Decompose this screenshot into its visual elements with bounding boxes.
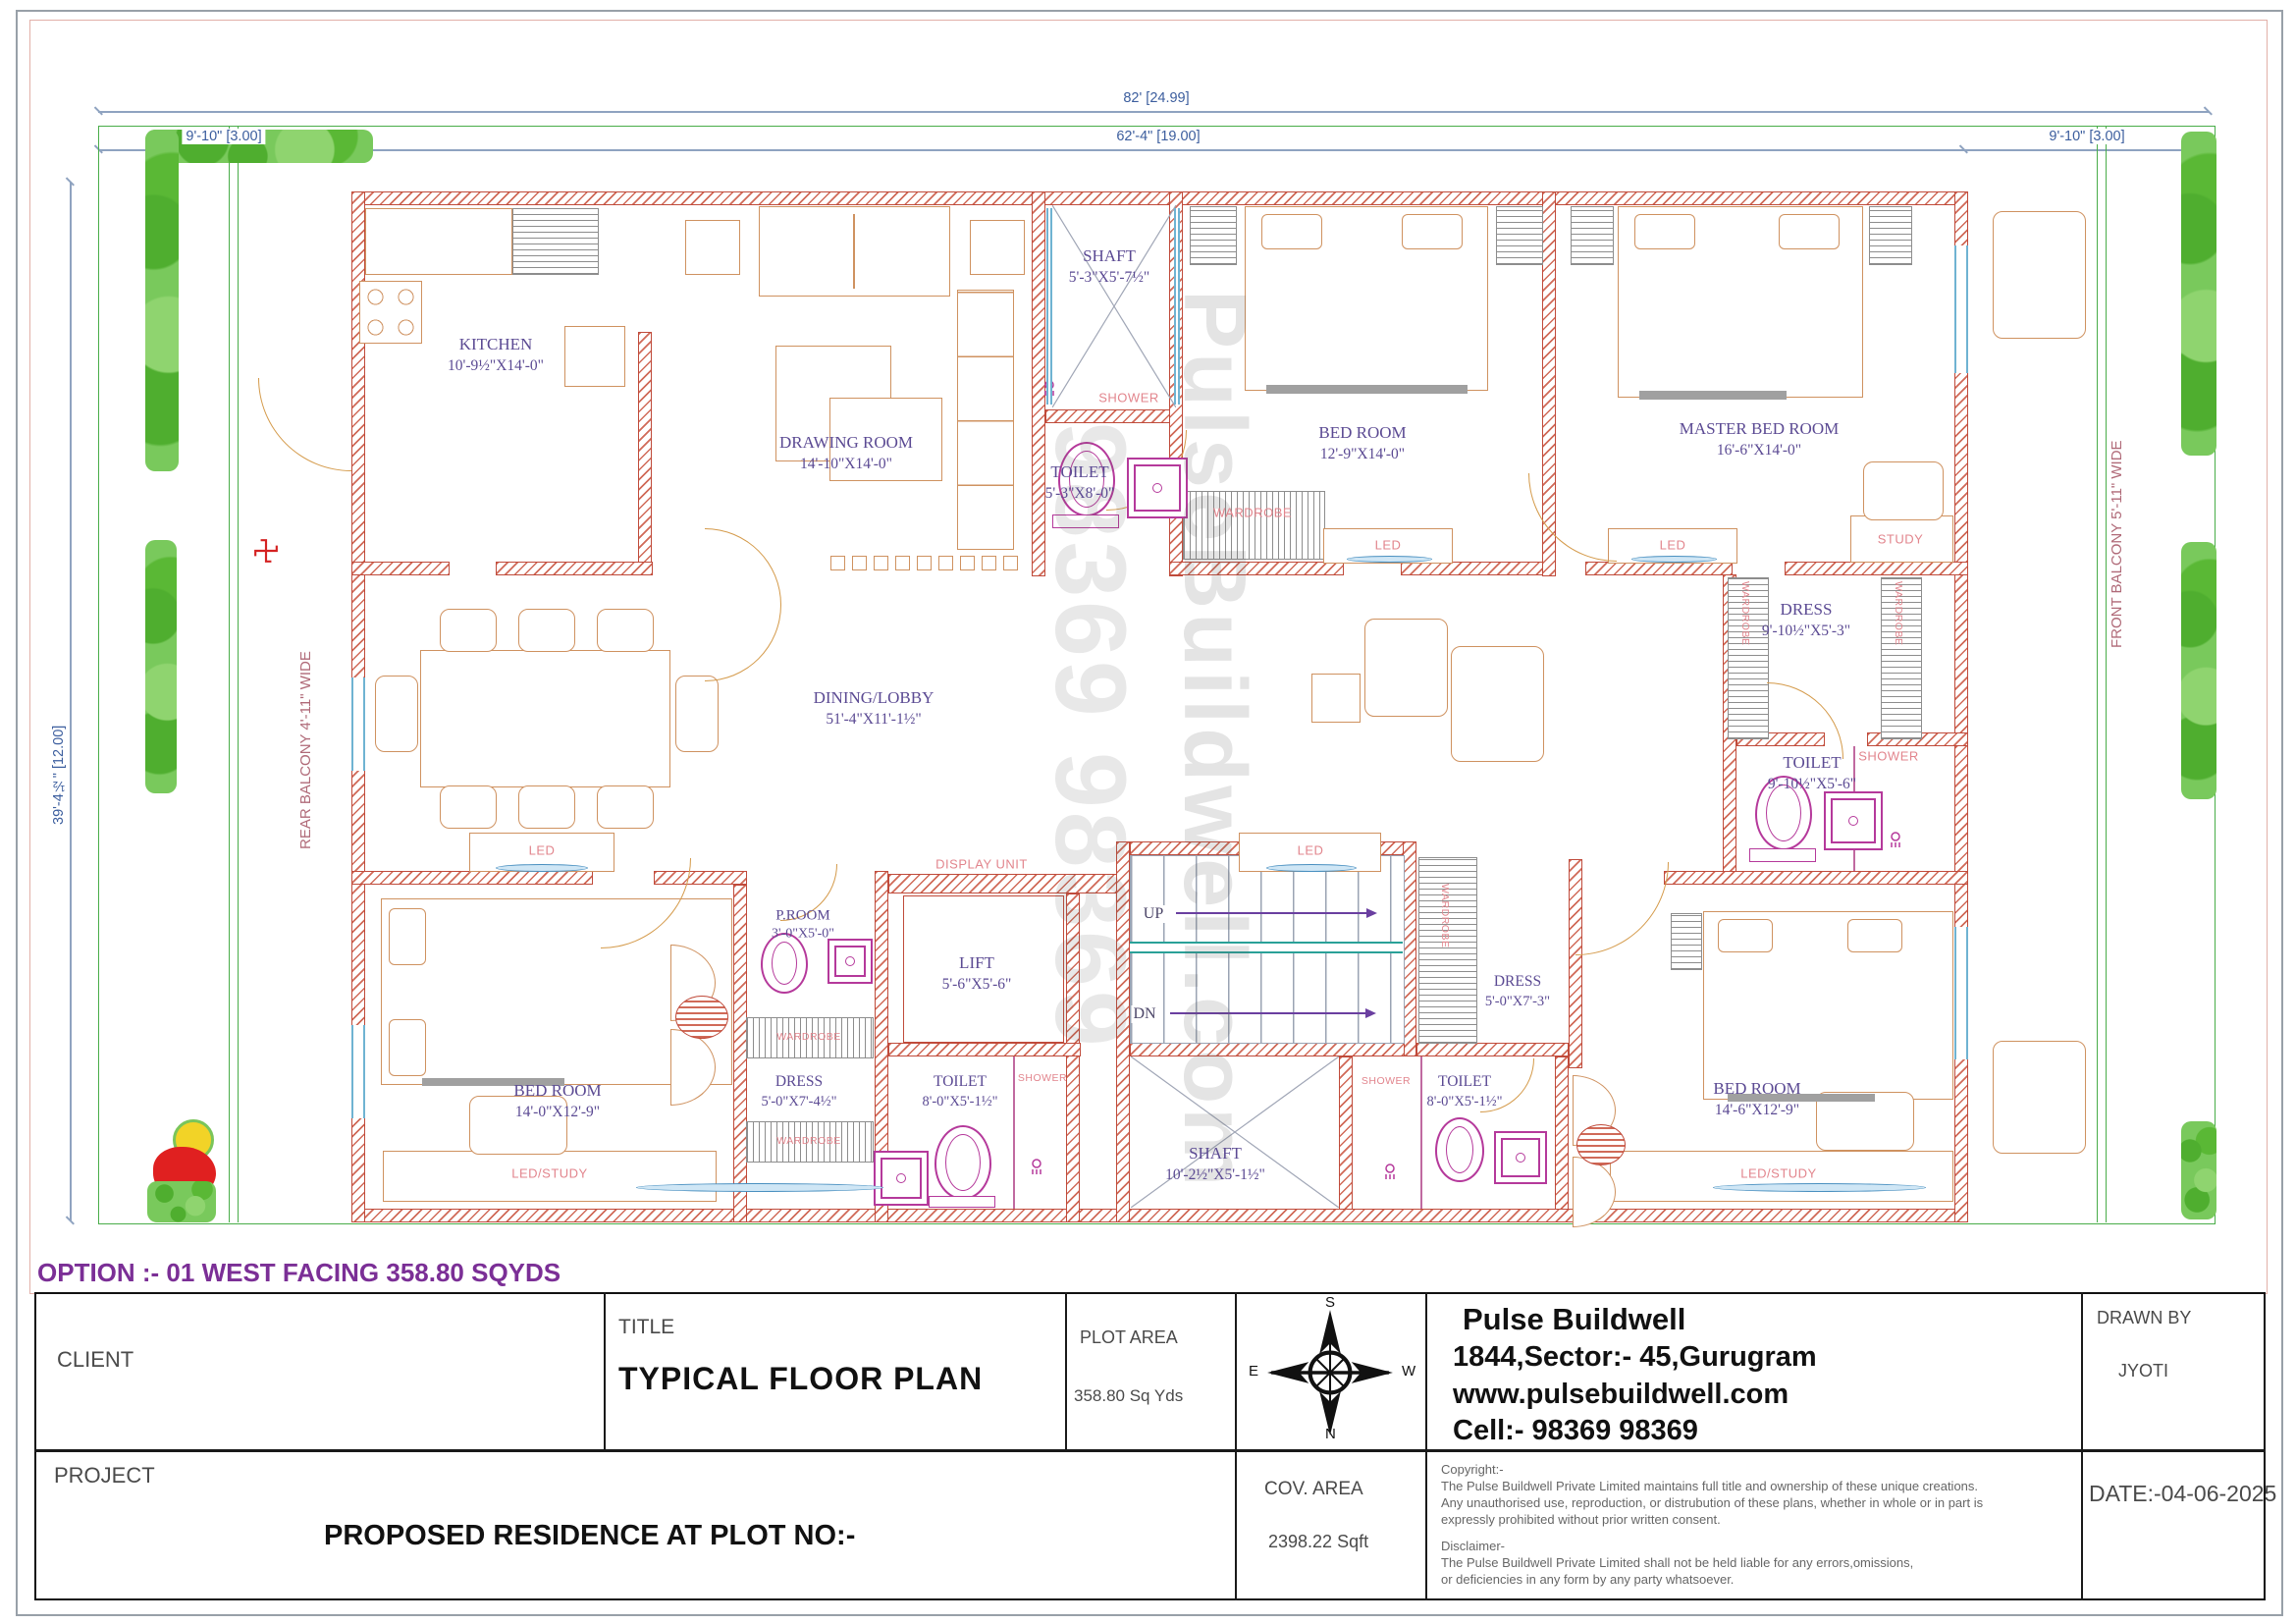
shelf-box	[938, 556, 953, 570]
balcony-chair	[1993, 211, 2086, 339]
wardrobe-label: WARDROBE	[1893, 581, 1904, 736]
wall	[1045, 409, 1183, 423]
led-screen	[496, 864, 588, 872]
front-balcony-label: FRONT BALCONY 5'-11" WIDE	[2109, 314, 2125, 648]
wall	[1416, 1043, 1569, 1056]
plants	[147, 1181, 216, 1222]
window	[351, 1025, 365, 1118]
compass-e: E	[1249, 1363, 1258, 1380]
company-cell: Cell:- 98369 98369	[1453, 1415, 1698, 1447]
floor-plan-sheet: 82' [24.99] 9'-10" [3.00] 62'-4" [19.00]…	[0, 0, 2296, 1624]
dining-chair	[440, 785, 497, 829]
date-value: DATE:-04-06-2025	[2089, 1481, 2276, 1507]
led-screen	[1713, 1183, 1926, 1192]
wall	[1401, 562, 1556, 575]
stair-up-label: UP	[1142, 905, 1165, 923]
sink	[874, 1151, 929, 1206]
dining-chair	[597, 785, 654, 829]
led-label: LED	[1375, 538, 1402, 553]
kitchen-stove	[359, 281, 422, 344]
copyright-line: The Pulse Buildwell Private Limited main…	[1441, 1478, 2069, 1494]
shelf-box	[830, 556, 845, 570]
led-label: LED	[1298, 843, 1324, 858]
lobby-chair	[1451, 646, 1544, 762]
copyright-line: Any unauthorised use, reproduction, or d…	[1441, 1494, 2069, 1511]
toilet-tank	[929, 1196, 995, 1208]
company-address: 1844,Sector:- 45,Gurugram	[1453, 1341, 1817, 1374]
compass-n: N	[1325, 1426, 1336, 1442]
room-label-drawing: DRAWING ROOM14'-10"X14'-0"	[779, 432, 913, 475]
dining-chair	[518, 609, 575, 652]
kitchen-fridge	[564, 326, 625, 387]
room-label-proom: P.ROOM3'-0"X5'-0"	[772, 905, 834, 944]
copyright-block: Copyright:- The Pulse Buildwell Private …	[1441, 1461, 2069, 1588]
shelf-box	[874, 556, 888, 570]
pillow	[1402, 214, 1463, 249]
bedside-table	[1869, 206, 1912, 265]
client-label: CLIENT	[57, 1347, 133, 1373]
planter	[675, 996, 728, 1039]
plants	[145, 130, 179, 471]
dim-overall-width: 82' [24.99]	[1119, 90, 1193, 106]
disclaimer-line: The Pulse Buildwell Private Limited shal…	[1441, 1554, 2069, 1571]
wardrobe-label: WARDROBE	[1213, 506, 1292, 520]
room-label-master: MASTER BED ROOM16'-6"X14'-0"	[1680, 418, 1839, 461]
watermark-site: PulseBuildwell.com	[1163, 290, 1264, 1190]
wall	[638, 332, 652, 575]
company-website: www.pulsebuildwell.com	[1453, 1379, 1789, 1411]
dim-right-span: 9'-10" [3.00]	[2045, 129, 2128, 144]
cov-area-value: 2398.22 Sqft	[1268, 1532, 1368, 1552]
wall	[1403, 841, 1416, 1056]
room-label-shaft-b: SHAFT10'-2½"X5'-1½"	[1165, 1143, 1265, 1186]
disclaimer-line: or deficiencies in any form by any party…	[1441, 1571, 2069, 1588]
shelf-box	[852, 556, 867, 570]
drawn-by-value: JYOTI	[2118, 1361, 2168, 1381]
compass-s: S	[1325, 1294, 1335, 1311]
copyright-line: expressly prohibited without prior writt…	[1441, 1511, 2069, 1528]
wall	[496, 562, 653, 575]
dim-mid-span: 62'-4" [19.00]	[1112, 129, 1203, 144]
sofa-divider	[853, 214, 855, 289]
window	[351, 677, 365, 771]
study-label: STUDY	[1878, 532, 1924, 547]
display-unit-label: DISPLAY UNIT	[935, 857, 1028, 872]
window	[1046, 208, 1052, 405]
dim-left-span: 9'-10" [3.00]	[182, 129, 265, 144]
rear-balcony-label: REAR BALCONY 4'-11" WIDE	[297, 565, 314, 849]
rear-balcony-rail	[229, 126, 239, 1222]
wall	[351, 562, 450, 575]
dim-line	[70, 182, 72, 1220]
led-screen	[1631, 556, 1717, 563]
room-label-toilet-bl: TOILET8'-0"X5'-1½"	[922, 1072, 997, 1111]
room-label-bed-top: BED ROOM12'-9"X14'-0"	[1318, 422, 1406, 465]
bedside-table	[1571, 206, 1614, 265]
project-label: PROJECT	[54, 1463, 155, 1489]
plants	[2181, 132, 2216, 456]
balcony-chair	[1993, 1041, 2086, 1154]
plants	[2181, 1121, 2216, 1219]
room-label-dress-br: DRESS5'-0"X7'-3"	[1485, 972, 1550, 1011]
drawing-title: TYPICAL FLOOR PLAN	[618, 1361, 983, 1397]
wall	[1555, 1056, 1569, 1210]
wall	[733, 885, 747, 1222]
led-screen	[636, 1183, 883, 1192]
title-label: TITLE	[618, 1316, 674, 1339]
wall	[1785, 562, 1968, 575]
toilet-tank	[1749, 848, 1816, 862]
bed-foot-strip	[1639, 391, 1787, 400]
shower-divider	[1420, 1056, 1422, 1209]
room-label-dress-r: DRESS9'-10½"X5'-3"	[1762, 599, 1850, 642]
shelf-box	[917, 556, 932, 570]
shower-label: SHOWER	[1362, 1075, 1411, 1087]
led-study-label: LED/STUDY	[1740, 1166, 1816, 1181]
pillow	[389, 908, 426, 965]
toilet-bowl	[1435, 1117, 1484, 1182]
room-label-toilet-top: TOILET5'-3"X8'-0"	[1045, 461, 1115, 505]
sofa	[759, 206, 950, 297]
window	[1954, 927, 1968, 1059]
shower-label: SHOWER	[1098, 391, 1159, 406]
lobby-chair	[1364, 619, 1448, 717]
shower-label: SHOWER	[1858, 749, 1919, 764]
shower-head-icon	[1026, 1157, 1047, 1178]
side-table	[685, 220, 740, 275]
watermark-phone: 98369 98369	[1033, 422, 1148, 1051]
wardrobe-label: WARDROBE	[776, 1135, 840, 1147]
led-label: LED	[529, 843, 556, 858]
led-study-label: LED/STUDY	[511, 1166, 587, 1181]
compass-icon	[1263, 1306, 1397, 1439]
dining-chair	[597, 609, 654, 652]
shower-divider	[1013, 1056, 1015, 1209]
pillow	[389, 1019, 426, 1076]
plants	[145, 540, 177, 793]
bedside-table	[1496, 206, 1543, 265]
company-name: Pulse Buildwell	[1463, 1302, 1685, 1337]
shower-label: SHOWER	[1018, 1072, 1067, 1084]
study-chair	[1863, 461, 1944, 520]
dining-chair	[375, 676, 418, 752]
pillow	[1718, 919, 1773, 952]
room-label-toilet-r: TOILET9'-10½"X5'-6"	[1768, 752, 1856, 795]
cov-area-label: COV. AREA	[1264, 1479, 1363, 1500]
wall	[351, 191, 1968, 205]
led-screen	[1347, 556, 1432, 563]
shower-head-icon	[1885, 830, 1906, 851]
pillow	[1847, 919, 1902, 952]
dim-overall-height: 39'-4½" [12.00]	[51, 609, 67, 825]
sink	[1824, 791, 1883, 850]
kitchen-hob	[365, 208, 512, 275]
bed-foot-strip	[1266, 385, 1468, 394]
pillow	[1779, 214, 1840, 249]
wardrobe-label: WARDROBE	[776, 1031, 840, 1043]
bedside-table	[1671, 913, 1702, 970]
wall	[1339, 1056, 1353, 1210]
room-label-kitchen: KITCHEN10'-9½"X14'-0"	[448, 334, 544, 377]
pillow	[1634, 214, 1695, 249]
pillow	[1261, 214, 1322, 249]
shower-head-icon	[1379, 1162, 1401, 1183]
side-table	[970, 220, 1025, 275]
wardrobe-label: WARDROBE	[1739, 581, 1751, 736]
dining-chair	[440, 609, 497, 652]
room-label-toilet-br: TOILET8'-0"X5'-1½"	[1426, 1072, 1502, 1111]
shelf-box	[895, 556, 910, 570]
toilet-bowl	[934, 1125, 991, 1200]
wall	[1585, 562, 1733, 575]
room-label-bed-bl: BED ROOM14'-0"X12'-9"	[513, 1080, 601, 1123]
dining-table	[420, 650, 670, 787]
planter	[1576, 1124, 1626, 1165]
wall	[351, 871, 593, 885]
dining-chair	[675, 676, 719, 752]
dining-chair	[518, 785, 575, 829]
shelf-box	[960, 556, 975, 570]
compass-w: W	[1402, 1363, 1415, 1380]
kitchen-drainboard	[512, 208, 599, 275]
option-line: OPTION :- 01 WEST FACING 358.80 SQYDS	[37, 1258, 561, 1288]
swastika-icon	[253, 538, 279, 564]
room-label-dining: DINING/LOBBY51'-4"X11'-1½"	[814, 687, 934, 731]
wall	[1664, 871, 1968, 885]
wall	[1066, 1056, 1080, 1222]
dim-line	[98, 111, 2209, 113]
stair-dn-label: DN	[1131, 1005, 1157, 1023]
plot-area-value: 358.80 Sq Yds	[1074, 1386, 1183, 1406]
drawn-by-label: DRAWN BY	[2097, 1308, 2191, 1328]
lobby-table	[1311, 674, 1361, 723]
front-balcony-rail	[2097, 126, 2107, 1222]
shelf-box	[1003, 556, 1018, 570]
copyright-heading: Copyright:-	[1441, 1461, 2069, 1478]
room-label-dress-bl: DRESS5'-0"X7'-4½"	[761, 1072, 836, 1111]
room-label-bed-br: BED ROOM14'-6"X12'-9"	[1713, 1078, 1800, 1121]
sink	[828, 939, 873, 984]
led-screen	[1266, 864, 1357, 872]
room-label-lift: LIFT5'-6"X5'-6"	[942, 952, 1012, 996]
tv-cabinet	[957, 290, 1014, 550]
shelf-box	[982, 556, 996, 570]
plot-area-label: PLOT AREA	[1080, 1327, 1178, 1348]
room-label-shaft-top: SHAFT5'-3"X5'-7½"	[1069, 245, 1149, 289]
wall	[351, 1209, 1968, 1222]
plants	[2181, 542, 2216, 799]
disclaimer-heading: Disclaimer-	[1441, 1538, 2069, 1554]
sink	[1494, 1131, 1547, 1184]
shaft-cross	[1052, 205, 1176, 407]
wardrobe-label: WARDROBE	[1439, 884, 1451, 1021]
project-value: PROPOSED RESIDENCE AT PLOT NO:-	[324, 1520, 855, 1552]
led-label: LED	[1660, 538, 1686, 553]
window	[1954, 245, 1968, 373]
bedside-table	[1190, 206, 1237, 265]
